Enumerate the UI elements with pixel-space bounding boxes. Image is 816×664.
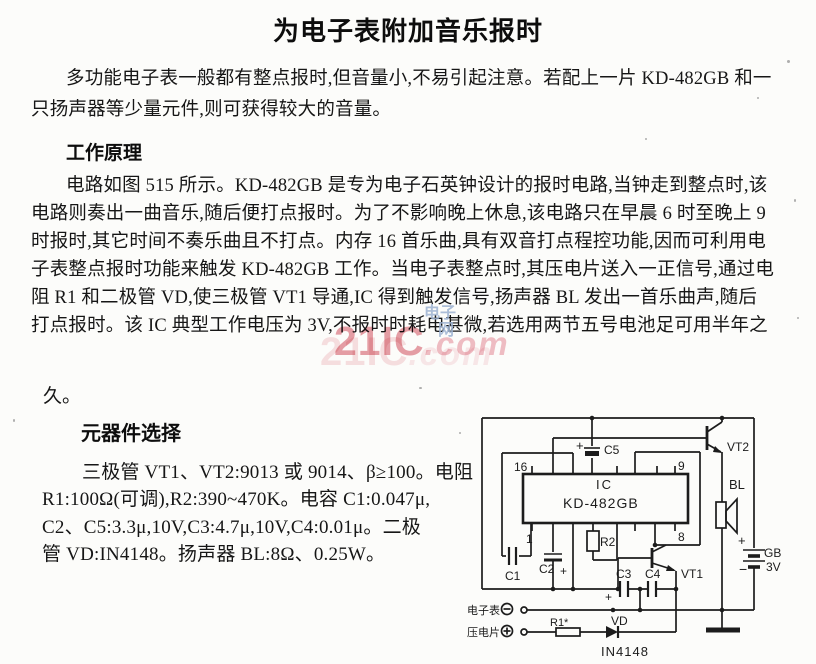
- scan-speckle: [787, 60, 790, 63]
- circuit-labels: 16 9 1 8 IC KD-482GB C5 + VT2 BL + − GB …: [467, 438, 781, 659]
- c3-label: C3: [616, 567, 632, 581]
- c5-label: C5: [604, 443, 620, 457]
- c1-capacitor: [509, 547, 516, 565]
- scan-speckle: [794, 199, 796, 202]
- pin-label: 8: [678, 530, 685, 544]
- minus-in-circle-icon: [502, 604, 513, 615]
- text-line: 阻 R1 和二极管 VD,使三极管 VT1 导通,IC 得到触发信号,扬声器 B…: [31, 284, 781, 312]
- text-line: R1:100Ω(可调),R2:390~470K。电容 C1:0.047μ,: [42, 486, 473, 513]
- scan-speckle: [757, 97, 759, 99]
- battery-plus: +: [738, 533, 746, 548]
- scan-speckle: [797, 317, 799, 319]
- piezo-terminal-label: 压电片: [467, 626, 500, 639]
- r2-label: R2: [600, 535, 616, 549]
- principle-tail: 久。: [43, 381, 81, 408]
- scan-speckle: [459, 432, 461, 434]
- watch-terminal: [521, 607, 527, 613]
- r1-label: R1*: [550, 617, 569, 629]
- section-heading-principle: 工作原理: [66, 138, 142, 165]
- piezo-terminal: [521, 629, 527, 635]
- principle-paragraph: 电路如图 515 所示。KD-482GB 是专为电子石英钟设计的报时电路,当钟走…: [31, 172, 781, 340]
- scanned-page: 为电子表附加音乐报时 多功能电子表一般都有整点报时,但音量小,不易引起注意。若配…: [0, 0, 816, 664]
- vt2-transistor: [707, 418, 722, 502]
- vd-label: VD: [611, 614, 628, 628]
- text-line: 打点报时。该 IC 典型工作电压为 3V,不报时时耗电甚微,若选用两节五号电池足…: [31, 312, 781, 340]
- c5-plus: +: [576, 438, 584, 453]
- plus-in-circle-icon: [502, 626, 513, 637]
- r1-resistor: [556, 628, 580, 636]
- c3-plus: +: [605, 590, 612, 604]
- intro-paragraph: 多功能电子表一般都有整点报时,但音量小,不易引起注意。若配上一片 KD-482G…: [31, 64, 781, 126]
- components-paragraph: 三极管 VT1、VT2:9013 或 9014、β≥100。电阻 R1:100Ω…: [42, 459, 473, 569]
- c1-label: C1: [505, 569, 521, 583]
- circuit-diagram: 16 9 1 8 IC KD-482GB C5 + VT2 BL + − GB …: [455, 395, 816, 664]
- page-title: 为电子表附加音乐报时: [0, 11, 816, 48]
- text-line: 管 VD:IN4148。扬声器 BL:8Ω、0.25W。: [42, 541, 473, 568]
- text-line: 时报时,其它时间不奏乐曲且不打点。内存 16 首乐曲,具有双音打点程控功能,因而…: [31, 228, 781, 256]
- circuit-wires: [482, 418, 765, 638]
- c2-label: C2: [539, 562, 555, 576]
- text-line: 子表整点报时功能来触发 KD-482GB 工作。当电子表整点时,其压电片送入一正…: [31, 256, 781, 284]
- gb-label: GB: [764, 546, 781, 560]
- battery-minus: −: [739, 561, 747, 577]
- c3-capacitor: [620, 581, 628, 597]
- vd-part-label: IN4148: [601, 644, 649, 659]
- ground-symbol: [706, 610, 740, 630]
- watch-terminal-label: 电子表: [467, 603, 500, 617]
- ic-part-label: KD-482GB: [563, 495, 639, 511]
- text-line: 电路则奏出一曲音乐,随后便打点报时。为了不影响晚上休息,该电路只在早晨 6 时至…: [31, 200, 781, 228]
- text-line: C2、C5:3.3μ,10V,C3:4.7μ,10V,C4:0.01μ。二极: [42, 514, 473, 541]
- c5-capacitor: [585, 451, 599, 456]
- pin-label: 16: [514, 460, 528, 474]
- gb-volts-label: 3V: [766, 560, 781, 574]
- speaker-symbol: [716, 499, 737, 610]
- scan-speckle: [419, 387, 422, 389]
- scan-speckle: [645, 138, 647, 140]
- c4-label: C4: [645, 567, 661, 581]
- bl-label: BL: [729, 477, 745, 492]
- text-line: 只扬声器等少量元件,则可获得较大的音量。: [31, 95, 781, 126]
- text-line: 三极管 VT1、VT2:9013 或 9014、β≥100。电阻: [42, 459, 473, 486]
- scan-speckle: [13, 419, 15, 422]
- vt2-label: VT2: [727, 440, 749, 454]
- c4-capacitor: [648, 581, 656, 597]
- text-line: 电路如图 515 所示。KD-482GB 是专为电子石英钟设计的报时电路,当钟走…: [31, 172, 781, 200]
- section-heading-components: 元器件选择: [81, 417, 181, 446]
- pin-label: 9: [678, 459, 685, 473]
- text-line: 多功能电子表一般都有整点报时,但音量小,不易引起注意。若配上一片 KD-482G…: [31, 64, 781, 95]
- r2-resistor: [587, 531, 599, 551]
- c2-plus: +: [560, 564, 567, 578]
- ic-label: IC: [596, 477, 613, 492]
- pin-label: 1: [526, 532, 533, 546]
- c2-capacitor: [544, 554, 562, 560]
- vt1-label: VT1: [681, 567, 703, 581]
